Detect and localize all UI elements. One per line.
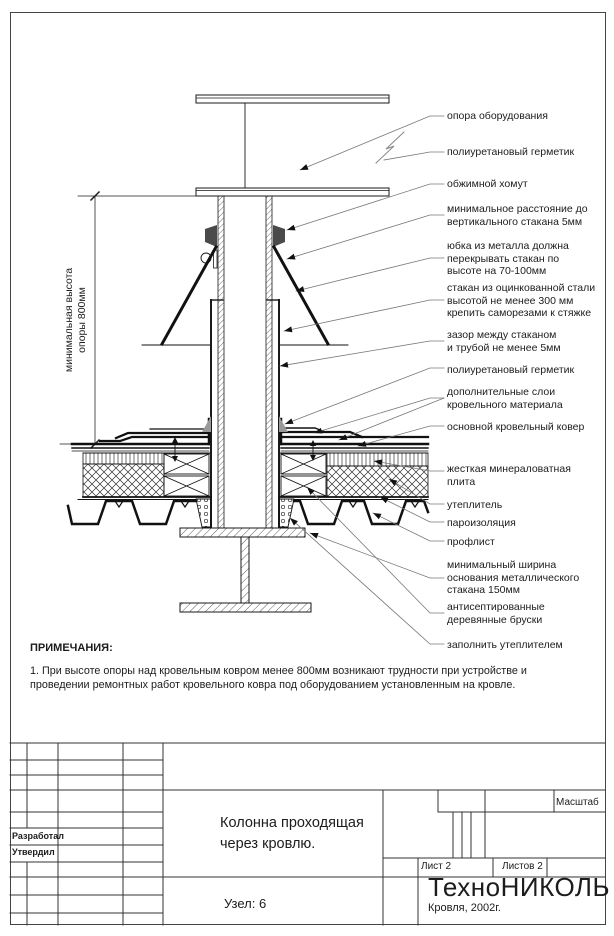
titleblock-sheets-total: Листов 2 <box>502 861 543 872</box>
label-clamp: обжимной хомут <box>447 178 528 191</box>
label-wooden-blocks: антисептированные деревянные бруски <box>447 601 545 626</box>
leader-lines <box>280 116 444 644</box>
skirt <box>142 247 348 345</box>
dimension-height-text: минимальная высота опоры 800мм <box>63 250 89 390</box>
titleblock-scale-label: Масштаб <box>556 797 599 808</box>
label-sleeve: стакан из оцинкованной стали высотой не … <box>447 282 595 320</box>
label-profiled-sheet: профлист <box>447 536 495 549</box>
pipe <box>218 196 272 528</box>
base-assembly <box>180 528 311 612</box>
notes-title: ПРИМЕЧАНИЯ: <box>30 642 113 654</box>
label-equipment-support: опора оборудования <box>447 110 548 123</box>
label-gap: зазор между стаканом и трубой не менее 5… <box>447 329 561 354</box>
label-skirt: юбка из металла должна перекрывать стака… <box>447 240 569 278</box>
label-min-distance: минимальное расстояние до вертикального … <box>447 203 588 228</box>
titleblock-approved-label: Утвердил <box>12 847 55 857</box>
roof-left <box>68 416 211 527</box>
label-mineral-plate: жесткая минераловатная плита <box>447 463 571 488</box>
label-base-width: минимальный ширина основания металлическ… <box>447 559 579 597</box>
drawing-sheet: опора оборудования полиуретановый гермет… <box>0 0 614 936</box>
titleblock-company-logo: ТехноНИКОЛЬ <box>428 872 610 903</box>
titleblock-developed-label: Разработал <box>12 831 64 841</box>
label-insulation: утеплитель <box>447 499 502 512</box>
label-fill-insulation: заполнить утеплителем <box>447 639 563 652</box>
top-beam <box>196 95 389 196</box>
label-main-carpet: основной кровельный ковер <box>447 421 584 434</box>
titleblock-series: Кровля, 2002г. <box>428 902 501 914</box>
label-extra-layers: дополнительные слои кровельного материал… <box>447 386 563 411</box>
titleblock-sheet-number: Лист 2 <box>421 861 451 872</box>
notes-body: 1. При высоте опоры над кровельным ковро… <box>30 664 596 692</box>
titleblock-drawing-title: Колонна проходящая через кровлю. <box>220 813 364 855</box>
label-sealant-bottom: полиуретановый герметик <box>447 364 574 377</box>
label-vapor-barrier: пароизоляция <box>447 517 516 530</box>
label-sealant-top: полиуретановый герметик <box>447 146 574 159</box>
titleblock-node-number: Узел: 6 <box>224 896 266 911</box>
